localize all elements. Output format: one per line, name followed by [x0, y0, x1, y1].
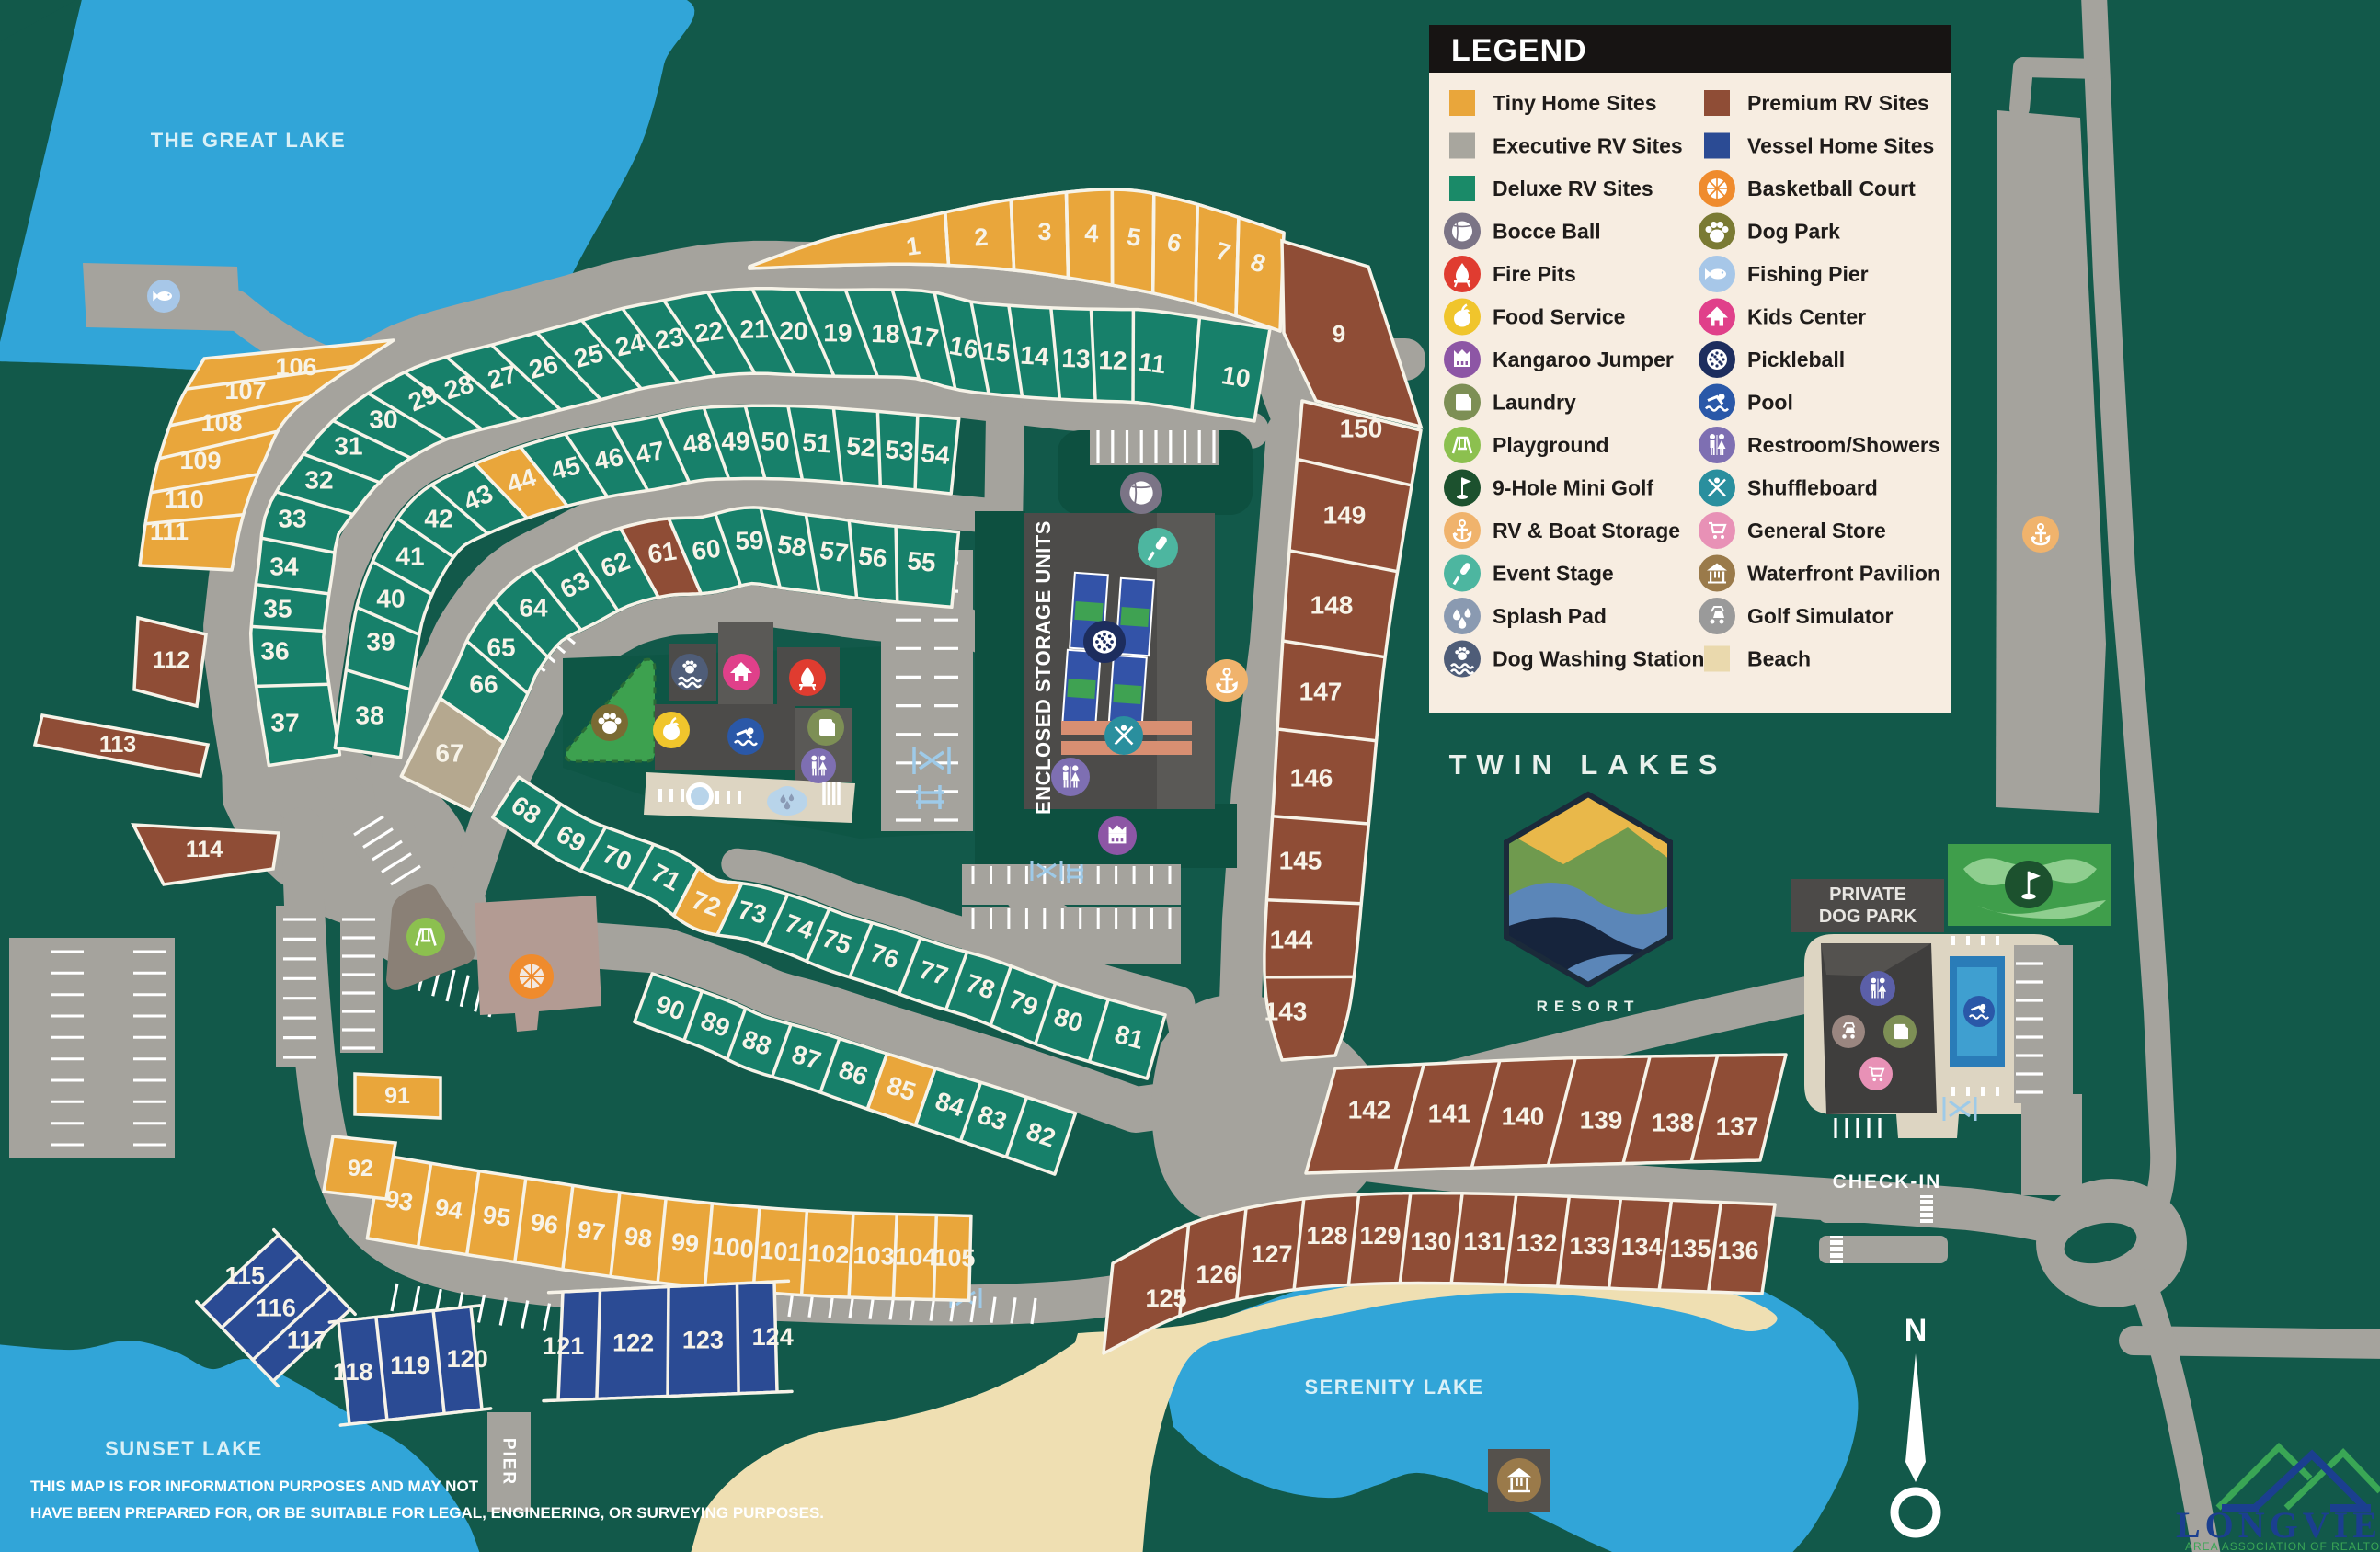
svg-text:LEGEND: LEGEND: [1451, 33, 1587, 68]
svg-text:TWIN LAKES: TWIN LAKES: [1449, 748, 1728, 781]
svg-text:110: 110: [164, 485, 204, 513]
svg-text:Deluxe RV Sites: Deluxe RV Sites: [1493, 177, 1653, 200]
svg-text:127: 127: [1251, 1240, 1292, 1268]
svg-text:139: 139: [1580, 1106, 1623, 1135]
svg-text:128: 128: [1306, 1222, 1347, 1250]
svg-text:104: 104: [895, 1243, 937, 1272]
svg-text:31: 31: [334, 432, 362, 461]
svg-text:Fishing Pier: Fishing Pier: [1747, 262, 1869, 286]
svg-text:34: 34: [269, 553, 299, 581]
svg-text:49: 49: [721, 427, 750, 456]
svg-text:146: 146: [1290, 764, 1333, 793]
svg-text:35: 35: [263, 595, 292, 623]
svg-text:96: 96: [529, 1208, 560, 1239]
svg-text:10: 10: [1219, 360, 1253, 394]
svg-text:11: 11: [1137, 348, 1168, 380]
svg-text:Bocce Ball: Bocce Ball: [1493, 220, 1601, 244]
svg-text:143: 143: [1264, 998, 1308, 1026]
svg-text:Golf Simulator: Golf Simulator: [1747, 604, 1894, 628]
svg-text:SUNSET LAKE: SUNSET LAKE: [105, 1437, 263, 1460]
svg-text:109: 109: [179, 447, 221, 474]
svg-text:32: 32: [304, 466, 333, 495]
svg-text:RV & Boat Storage: RV & Boat Storage: [1493, 519, 1680, 542]
svg-text:118: 118: [333, 1358, 373, 1386]
svg-text:145: 145: [1279, 847, 1322, 875]
svg-text:22: 22: [693, 316, 726, 348]
svg-text:38: 38: [355, 702, 383, 730]
svg-text:37: 37: [270, 709, 299, 737]
svg-text:147: 147: [1299, 678, 1343, 706]
svg-text:50: 50: [761, 427, 790, 455]
svg-text:Executive RV Sites: Executive RV Sites: [1493, 134, 1683, 158]
svg-text:129: 129: [1359, 1222, 1401, 1250]
svg-text:N: N: [1905, 1313, 1928, 1348]
svg-text:47: 47: [634, 436, 667, 469]
svg-text:Pool: Pool: [1747, 391, 1793, 415]
svg-text:14: 14: [1020, 341, 1050, 371]
svg-text:106: 106: [275, 353, 316, 381]
svg-text:148: 148: [1310, 591, 1354, 620]
svg-text:36: 36: [260, 637, 289, 666]
svg-text:Beach: Beach: [1747, 647, 1811, 671]
svg-text:Waterfront Pavilion: Waterfront Pavilion: [1747, 562, 1940, 586]
svg-text:General Store: General Store: [1747, 519, 1886, 542]
svg-text:23: 23: [653, 322, 686, 355]
svg-text:AREA ASSOCIATION OF REALTORS: AREA ASSOCIATION OF REALTORS: [2185, 1540, 2380, 1552]
svg-text:66: 66: [469, 670, 498, 699]
svg-text:Shuffleboard: Shuffleboard: [1747, 476, 1878, 500]
svg-text:53: 53: [884, 435, 915, 466]
svg-text:140: 140: [1502, 1102, 1545, 1131]
svg-text:Kangaroo Jumper: Kangaroo Jumper: [1493, 348, 1674, 371]
svg-text:57: 57: [818, 535, 850, 567]
svg-text:PRIVATE: PRIVATE: [1829, 884, 1906, 905]
svg-text:138: 138: [1652, 1109, 1695, 1137]
svg-text:21: 21: [739, 314, 769, 344]
svg-text:105: 105: [933, 1243, 976, 1272]
svg-text:61: 61: [646, 537, 678, 569]
svg-text:150: 150: [1340, 415, 1383, 443]
svg-text:46: 46: [592, 442, 625, 475]
svg-text:94: 94: [433, 1193, 464, 1225]
svg-text:Food Service: Food Service: [1493, 305, 1625, 329]
svg-text:135: 135: [1669, 1235, 1711, 1262]
svg-text:Restroom/Showers: Restroom/Showers: [1747, 433, 1940, 457]
svg-text:120: 120: [447, 1345, 488, 1373]
svg-text:116: 116: [256, 1295, 296, 1322]
svg-text:41: 41: [395, 542, 424, 571]
svg-text:Premium RV Sites: Premium RV Sites: [1747, 91, 1929, 115]
svg-text:59: 59: [735, 526, 764, 555]
svg-text:101: 101: [760, 1237, 803, 1267]
svg-text:99: 99: [669, 1227, 700, 1258]
svg-text:56: 56: [857, 542, 888, 573]
svg-text:122: 122: [612, 1329, 654, 1357]
svg-text:20: 20: [779, 316, 808, 346]
svg-text:65: 65: [486, 633, 515, 662]
svg-text:Event Stage: Event Stage: [1493, 562, 1614, 586]
svg-text:Dog Park: Dog Park: [1747, 220, 1840, 244]
svg-text:Laundry: Laundry: [1493, 391, 1576, 415]
svg-text:130: 130: [1410, 1227, 1451, 1255]
svg-text:98: 98: [623, 1222, 654, 1253]
svg-text:144: 144: [1270, 926, 1313, 954]
svg-text:33: 33: [278, 505, 306, 533]
svg-text:131: 131: [1463, 1227, 1505, 1255]
svg-text:108: 108: [200, 409, 242, 437]
svg-text:HAVE BEEN PREPARED FOR, OR BE: HAVE BEEN PREPARED FOR, OR BE SUITABLE F…: [30, 1504, 824, 1522]
svg-text:134: 134: [1620, 1233, 1662, 1261]
svg-text:103: 103: [852, 1241, 895, 1270]
svg-text:THIS MAP IS FOR INFORMATION PU: THIS MAP IS FOR INFORMATION PURPOSES AND…: [30, 1478, 479, 1495]
svg-text:4: 4: [1084, 220, 1100, 248]
svg-text:136: 136: [1717, 1237, 1758, 1264]
svg-text:9: 9: [1333, 320, 1345, 348]
svg-text:124: 124: [752, 1323, 794, 1351]
svg-text:55: 55: [906, 546, 937, 577]
svg-text:100: 100: [711, 1232, 755, 1263]
svg-text:17: 17: [908, 320, 941, 352]
svg-text:13: 13: [1061, 344, 1091, 373]
svg-text:142: 142: [1348, 1096, 1391, 1124]
svg-text:Tiny Home Sites: Tiny Home Sites: [1493, 91, 1657, 115]
svg-text:Vessel Home Sites: Vessel Home Sites: [1747, 134, 1934, 158]
svg-text:95: 95: [481, 1201, 512, 1232]
svg-text:115: 115: [225, 1262, 266, 1290]
svg-text:30: 30: [369, 405, 397, 434]
svg-text:3: 3: [1037, 218, 1051, 245]
svg-text:92: 92: [348, 1156, 373, 1181]
svg-text:2: 2: [974, 223, 990, 252]
svg-text:PIER: PIER: [499, 1438, 519, 1486]
svg-text:CHECK-IN: CHECK-IN: [1833, 1171, 1942, 1193]
svg-text:125: 125: [1145, 1284, 1186, 1312]
svg-text:113: 113: [99, 732, 136, 758]
svg-text:58: 58: [775, 530, 807, 562]
svg-text:DOG PARK: DOG PARK: [1819, 907, 1917, 927]
svg-text:Fire Pits: Fire Pits: [1493, 262, 1576, 286]
svg-text:97: 97: [576, 1215, 607, 1247]
svg-text:149: 149: [1323, 501, 1367, 530]
svg-text:54: 54: [920, 439, 951, 470]
svg-text:15: 15: [980, 337, 1012, 368]
svg-text:Pickleball: Pickleball: [1747, 348, 1845, 371]
svg-text:40: 40: [376, 585, 405, 613]
svg-text:119: 119: [390, 1352, 430, 1379]
svg-text:Dog Washing Station: Dog Washing Station: [1493, 647, 1704, 671]
svg-text:133: 133: [1569, 1232, 1610, 1260]
svg-text:9-Hole Mini Golf: 9-Hole Mini Golf: [1493, 476, 1653, 500]
svg-text:102: 102: [807, 1239, 850, 1269]
svg-text:51: 51: [802, 428, 832, 459]
svg-text:52: 52: [845, 431, 876, 462]
svg-text:67: 67: [435, 739, 463, 768]
svg-text:Splash Pad: Splash Pad: [1493, 604, 1607, 628]
svg-text:111: 111: [150, 518, 189, 545]
svg-text:39: 39: [366, 628, 395, 656]
svg-text:123: 123: [682, 1326, 724, 1353]
svg-text:107: 107: [224, 377, 266, 405]
svg-text:12: 12: [1098, 346, 1127, 375]
svg-text:60: 60: [691, 534, 723, 566]
svg-text:18: 18: [871, 319, 900, 348]
svg-text:112: 112: [153, 647, 189, 673]
svg-text:Playground: Playground: [1493, 433, 1609, 457]
svg-text:64: 64: [519, 594, 548, 622]
svg-text:42: 42: [424, 505, 452, 533]
svg-text:Kids Center: Kids Center: [1747, 305, 1866, 329]
svg-text:RESORT: RESORT: [1537, 998, 1641, 1015]
svg-text:117: 117: [287, 1327, 327, 1354]
svg-text:16: 16: [947, 331, 980, 364]
svg-text:141: 141: [1428, 1100, 1471, 1128]
svg-text:THE GREAT LAKE: THE GREAT LAKE: [151, 129, 346, 152]
svg-text:Basketball Court: Basketball Court: [1747, 177, 1916, 200]
svg-text:SERENITY LAKE: SERENITY LAKE: [1304, 1375, 1483, 1398]
svg-text:114: 114: [186, 837, 223, 862]
svg-text:137: 137: [1716, 1113, 1759, 1141]
svg-text:48: 48: [681, 428, 713, 460]
svg-text:121: 121: [543, 1332, 584, 1360]
svg-text:19: 19: [823, 318, 852, 347]
svg-text:91: 91: [384, 1083, 410, 1109]
svg-text:ENCLOSED STORAGE UNITS: ENCLOSED STORAGE UNITS: [1032, 520, 1055, 815]
svg-text:132: 132: [1516, 1229, 1557, 1257]
svg-text:126: 126: [1196, 1261, 1237, 1288]
